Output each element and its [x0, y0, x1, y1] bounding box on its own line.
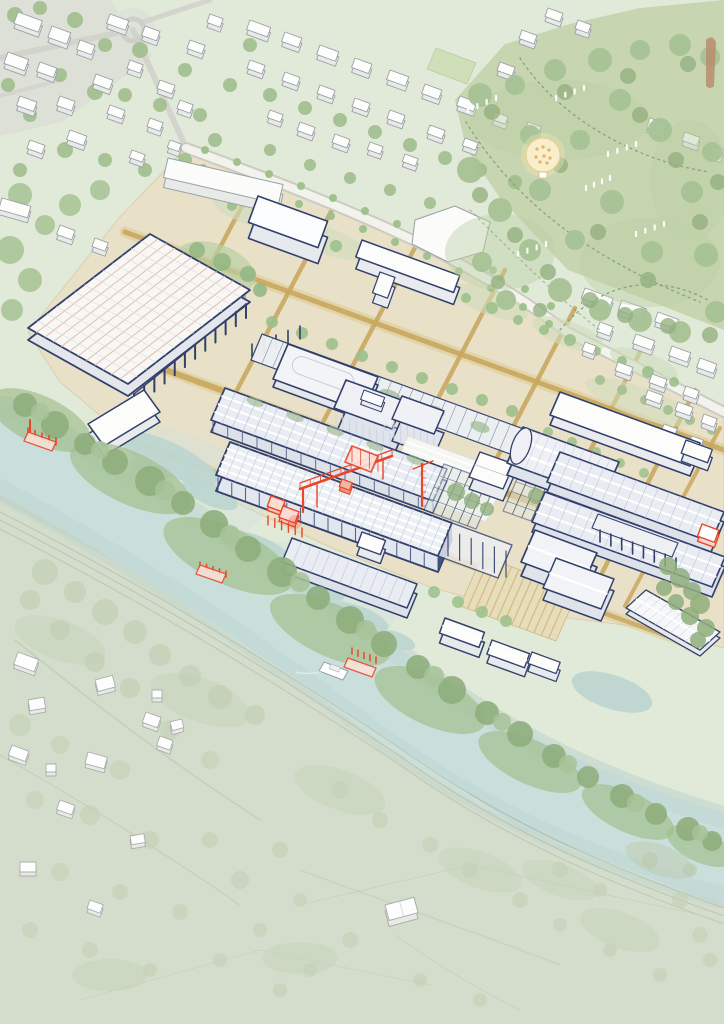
red-scaffold-mass — [288, 515, 302, 529]
balloon-basket — [539, 172, 547, 178]
masterplan-scene: GM — [0, 0, 724, 1024]
masterplan-illustration: GM Axonometric illustrated masterplan of… — [0, 0, 724, 1024]
